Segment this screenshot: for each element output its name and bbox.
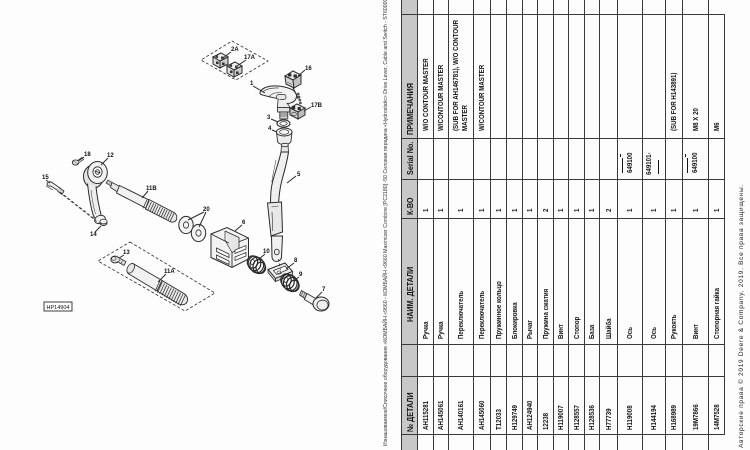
svg-text:17B: 17B [311, 103, 323, 109]
svg-text:20: 20 [203, 207, 210, 213]
svg-text:4: 4 [268, 126, 272, 132]
svg-text:16: 16 [305, 66, 312, 72]
svg-text:7: 7 [322, 287, 326, 293]
svg-text:6: 6 [242, 220, 246, 226]
svg-text:HP14904: HP14904 [47, 305, 70, 311]
svg-text:18: 18 [84, 152, 91, 158]
svg-text:14: 14 [90, 232, 97, 238]
svg-text:15: 15 [42, 175, 49, 181]
svg-text:13: 13 [123, 250, 130, 256]
svg-text:2A: 2A [231, 47, 239, 53]
svg-text:12: 12 [107, 153, 114, 159]
svg-text:3: 3 [267, 115, 271, 121]
svg-text:8: 8 [294, 258, 298, 264]
svg-text:5: 5 [297, 172, 301, 178]
svg-text:9: 9 [299, 272, 303, 278]
